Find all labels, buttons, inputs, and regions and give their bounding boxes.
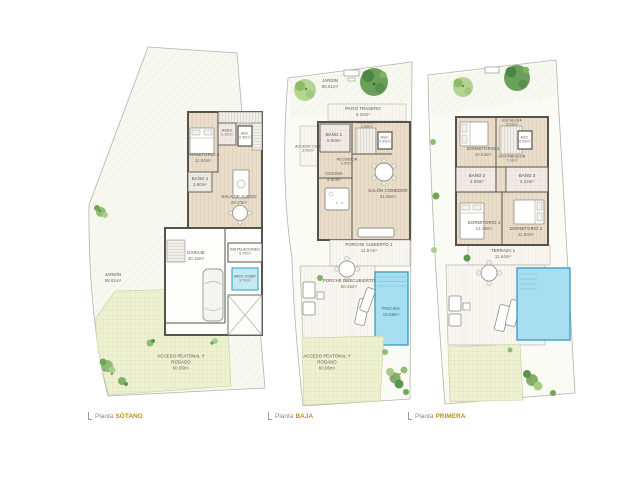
stairs-run [252,123,262,150]
room-name: DORMITORIO 3 [467,146,500,152]
room-name: PATIO TRASERO [345,106,380,112]
room-area: 14.45m² [468,226,501,232]
caption-corner-mark [408,412,412,420]
room-area: 3.00m² [295,149,321,153]
room-name: BAÑO 4 [192,176,208,182]
plan-sotano-drawing [89,47,265,396]
room-label-aseo: ASEO 2.10m² [221,129,233,138]
room-area: 6.25m² [345,112,380,118]
room-name: BAÑO 1 [326,132,342,138]
room-area: 31.86m² [368,194,408,200]
room-label-instalaciones: INSTALACIONES 5.75m² [230,248,260,257]
room-area: 11.50m² [187,158,220,164]
room-label-garaje: GARAJE 40.15m² [187,250,205,262]
room-label-cocina: COCINA 9.90m² [325,171,342,183]
tree [294,79,316,101]
room-area: 60.95m² [157,365,204,371]
ramp-area [228,295,262,335]
bed-icon [514,200,544,224]
room-area: 4.23m² [519,179,535,185]
floorplan-sheet: DORMITORIO 4 11.50m² ASEO 2.10m² ASC. 0.… [0,0,640,480]
room-label-acceso-sotano: ACCESO PEATONAL Y RODADO 60.95m² [157,353,204,370]
room-area: 11.67m² [346,248,393,254]
room-label-jardin-baja: JARDÍN 58.61m² [322,78,338,90]
room-area: 11.50m² [510,232,543,238]
room-name: PORCHE DESCUBIERTO [323,278,375,284]
room-label-piscina: PISCINA 10.69m² [382,306,400,318]
room-label-asc-baja: ASC. 0.55m² [379,136,391,145]
pool [517,268,570,340]
room-name: BAÑO 3 [519,173,535,179]
room-name: PISCINA [382,306,400,312]
room-area: 5.69m² [502,123,522,127]
caption-corner-mark [268,412,272,420]
room-label-vaso-comp: VASO COMP. 3.70m² [233,275,256,284]
room-area: 10.54m² [467,152,500,158]
room-area: 0.55m² [519,140,531,144]
room-label-dormitorio2: DORMITORIO 2 11.50m² [510,226,543,238]
room-label-acceso-baja: ACCESO PEATONAL Y RODADO 60.95m² [303,353,350,370]
room-area: 60.95m² [303,365,350,371]
room-area: 0.55m² [379,140,391,144]
room-name: SALÓN COMEDOR [368,188,408,194]
room-area: 7.16m² [499,159,526,163]
room-label-dormitorio3: DORMITORIO 3 10.54m² [467,146,500,158]
room-label-jardin-sotano: JARDÍN 98.61m² [105,272,121,284]
room-area: 40.15m² [187,256,205,262]
room-label-porche-descubierto: PORCHE DESCUBIERTO 50.45m² [323,278,375,290]
room-area: 0.55m² [239,136,251,140]
room-area: 3.90m² [192,182,208,188]
room-name: BAÑO 2 [469,173,485,179]
room-label-salon-comedor: SALÓN COMEDOR 31.86m² [368,188,408,200]
caption-prefix: Planta [275,413,293,420]
bed-icon [190,128,214,154]
room-name: JARDÍN [105,272,121,278]
room-label-terraza1: TERRAZA 1 11.64m² [491,248,515,260]
room-label-porche-cubierto: PORCHE CUBIERTO 1 11.67m² [346,242,393,254]
room-name: SALA DE JUEGO [221,194,256,200]
room-name: GARAJE [187,250,205,256]
room-area: 10.69m² [382,312,400,318]
room-label-patio-trasero: PATIO TRASERO 6.25m² [345,106,380,118]
room-area: 50.45m² [323,284,375,290]
floorplan-drawing [0,0,640,480]
room-area: 58.61m² [322,84,338,90]
acceso-grass-area [448,344,523,402]
room-area: 11.64m² [491,254,515,260]
room-name: PORCHE CUBIERTO 1 [346,242,393,248]
plan-primera-drawing [428,60,575,404]
caption-corner-mark [88,412,92,420]
stairs-run [218,112,262,123]
room-name: DORMITORIO 2 [510,226,543,232]
room-area: 5.50m² [326,138,342,144]
room-label-bano4: BAÑO 4 3.90m² [192,176,208,188]
room-label-bano2: BAÑO 2 4.09m² [469,173,485,185]
room-area: 4.09m² [469,179,485,185]
room-label-dormitorio4: DORMITORIO 4 11.50m² [187,152,220,164]
room-label-asc-primera: ASC. 0.55m² [519,136,531,145]
room-area: 2.10m² [221,133,233,137]
room-name: ACCESO PEATONAL Y [157,353,204,359]
car-icon [203,269,223,321]
kitchen-island-icon [325,188,349,210]
room-area: 29.10m² [221,200,256,206]
room-name: COCINA [325,171,342,177]
stairs-run [167,240,185,262]
caption-prefix: Planta [415,413,433,420]
caption-floor-name: BAJA [295,413,313,420]
room-label-asc: ASC. 0.55m² [239,132,251,141]
room-area: 5.75m² [230,252,260,256]
room-label-distribuidor: DISTRIBUIDOR 7.16m² [499,155,526,164]
tree [453,77,473,97]
room-label-bano1: BAÑO 1 5.50m² [326,132,342,144]
caption-prefix: Planta [95,413,113,420]
room-area: 9.55m² [337,162,358,166]
room-name: DORMITORIO 4 [187,152,220,158]
room-area: 9.90m² [325,177,342,183]
room-label-escalera-primera: ESCALERA 5.69m² [502,119,522,128]
room-label-sala-de-juego: SALA DE JUEGO 29.10m² [221,194,256,206]
room-name: ACCESO PEATONAL Y [303,353,350,359]
bed-icon [460,122,488,146]
room-name: DORMITORIO 1 [468,220,501,226]
caption-planta-primera: Planta PRIMERA [408,412,465,420]
caption-floor-name: SÓTANO [115,413,142,420]
sofa-icon [358,228,394,237]
tree [360,68,388,96]
room-label-bano3: BAÑO 3 4.23m² [519,173,535,185]
room-area: 5.96m² [357,125,377,129]
caption-planta-sotano: Planta SÓTANO [88,412,143,420]
garden-bench-icon [485,67,499,73]
room-area: 3.70m² [233,279,256,283]
room-name: JARDÍN [322,78,338,84]
room-label-dormitorio1: DORMITORIO 1 14.45m² [468,220,501,232]
room-label-acceso-cub: ACCESO CUB. 3.00m² [295,145,321,154]
caption-floor-name: PRIMERA [435,413,465,420]
room-label-recibidor: RECIBIDOR 9.55m² [337,158,358,167]
room-area: 98.61m² [105,278,121,284]
tree [504,65,530,91]
room-label-escalera-baja: ESCALERA 5.96m² [357,121,377,130]
caption-planta-baja: Planta BAJA [268,412,313,420]
stairs-run [356,128,376,154]
room-name: TERRAZA 1 [491,248,515,254]
